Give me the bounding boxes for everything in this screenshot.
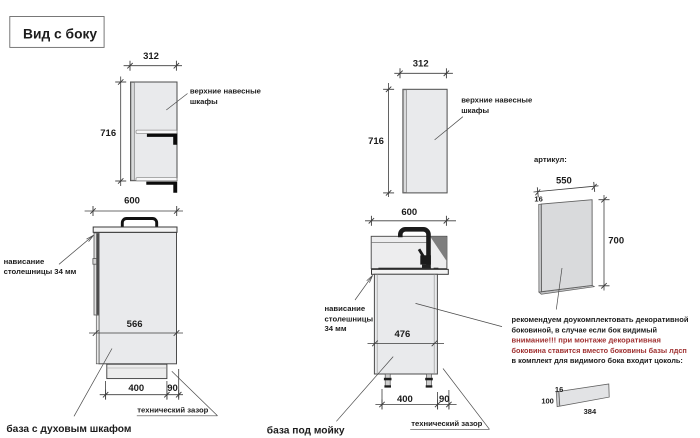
svg-text:312: 312	[143, 51, 159, 62]
svg-text:внимание!!! при монтаже декора: внимание!!! при монтаже декоративная	[512, 336, 661, 345]
svg-text:столешницы: столешницы	[325, 314, 374, 323]
svg-text:716: 716	[100, 128, 116, 139]
svg-text:384: 384	[584, 407, 597, 416]
svg-text:700: 700	[608, 235, 624, 246]
svg-text:16: 16	[534, 194, 542, 203]
svg-text:нависание: нависание	[325, 304, 366, 313]
svg-text:34 мм: 34 мм	[325, 324, 347, 333]
svg-text:566: 566	[127, 319, 143, 330]
svg-text:боковина ставится вместо боков: боковина ставится вместо боковины базы л…	[512, 346, 688, 355]
svg-text:400: 400	[397, 394, 413, 405]
svg-text:550: 550	[556, 176, 572, 187]
svg-text:400: 400	[128, 383, 144, 394]
svg-text:16: 16	[555, 385, 563, 394]
svg-text:столешницы 34 мм: столешницы 34 мм	[4, 267, 77, 276]
svg-text:боковиной, в случае если бок в: боковиной, в случае если бок видимый	[512, 325, 658, 334]
svg-text:90: 90	[439, 394, 450, 405]
svg-text:база под мойку: база под мойку	[267, 424, 345, 436]
svg-text:шкафы: шкафы	[190, 97, 218, 106]
svg-text:шкафы: шкафы	[461, 106, 489, 115]
svg-text:база с духовым шкафом: база с духовым шкафом	[6, 423, 131, 435]
svg-text:в комплект для видимого бока в: в комплект для видимого бока входит цоко…	[512, 356, 683, 365]
svg-text:312: 312	[413, 59, 429, 70]
svg-text:рекомендуем доукомплектовать д: рекомендуем доукомплектовать декоративно…	[512, 315, 689, 324]
svg-text:90: 90	[167, 383, 178, 394]
svg-text:600: 600	[124, 196, 140, 207]
svg-text:артикул:: артикул:	[534, 155, 567, 164]
svg-text:716: 716	[368, 136, 384, 147]
svg-text:верхние навесные: верхние навесные	[461, 96, 533, 105]
svg-text:технический зазор: технический зазор	[411, 419, 482, 428]
svg-text:Вид с боку: Вид с боку	[23, 26, 97, 41]
svg-text:верхние навесные: верхние навесные	[190, 87, 262, 96]
svg-text:нависание: нависание	[4, 257, 45, 266]
svg-text:600: 600	[401, 207, 417, 218]
svg-text:476: 476	[394, 329, 410, 340]
svg-text:технический зазор: технический зазор	[137, 405, 208, 414]
svg-text:100: 100	[541, 397, 554, 406]
